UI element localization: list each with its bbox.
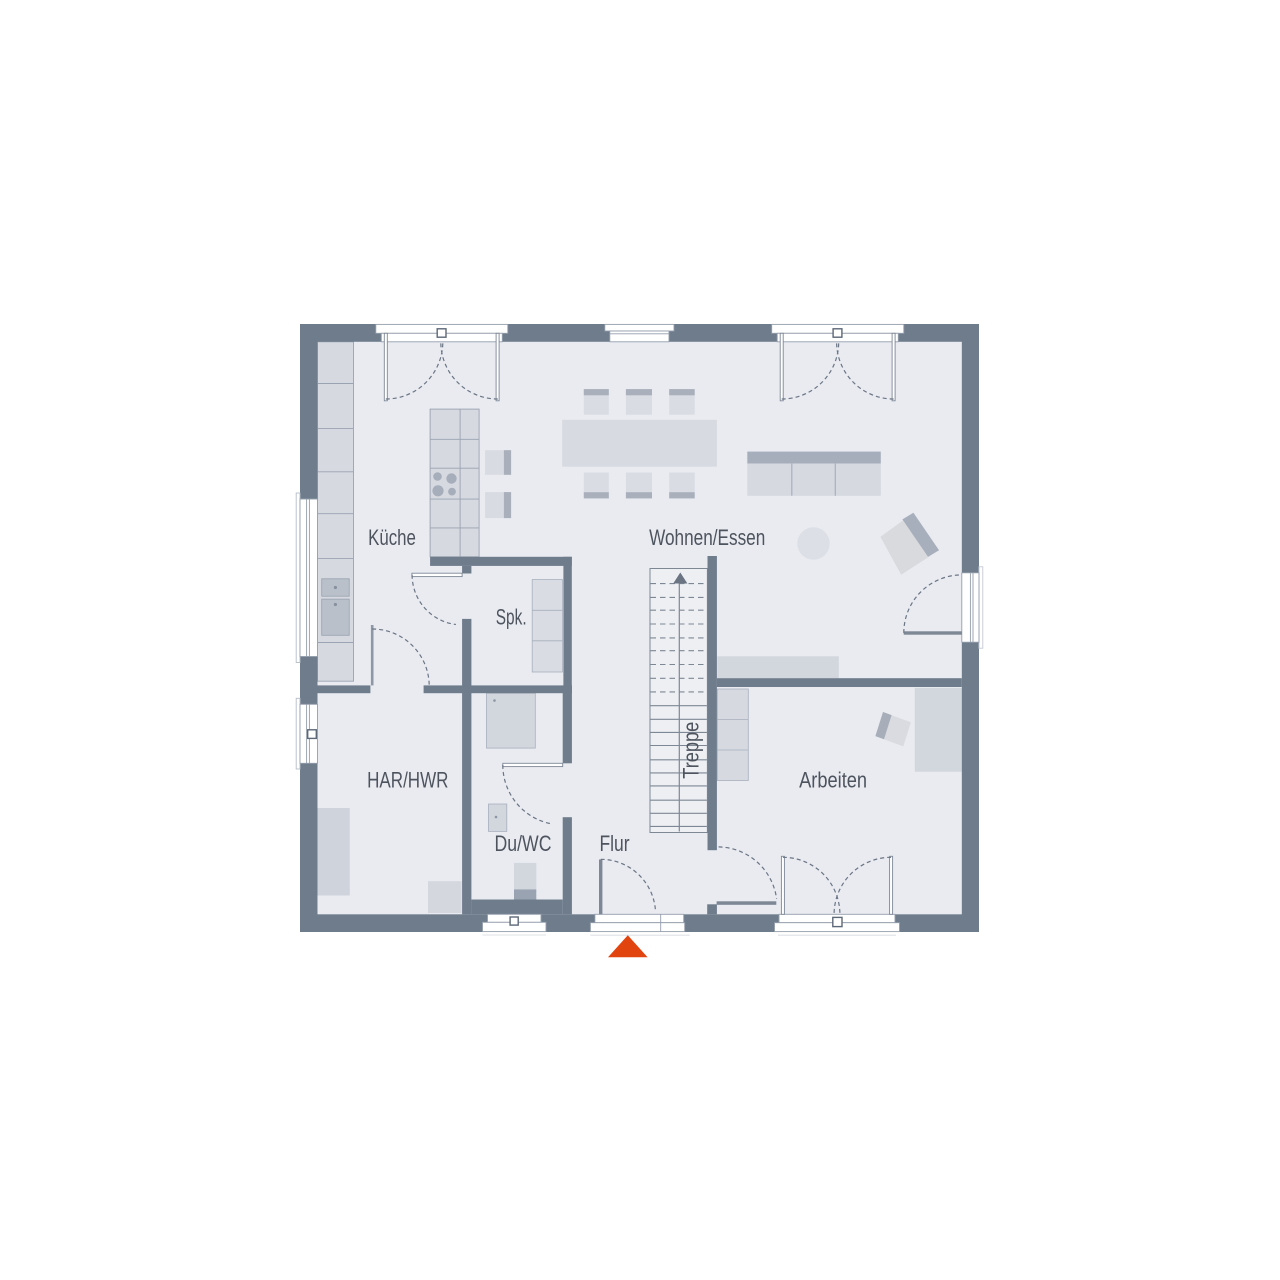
- svg-text:Arbeiten: Arbeiten: [799, 768, 867, 793]
- svg-text:HAR/HWR: HAR/HWR: [367, 768, 448, 793]
- svg-text:Flur: Flur: [599, 831, 629, 856]
- svg-text:Treppe: Treppe: [679, 722, 704, 779]
- svg-text:Küche: Küche: [368, 525, 416, 550]
- svg-text:Du/WC: Du/WC: [495, 831, 552, 856]
- svg-text:Wohnen/Essen: Wohnen/Essen: [649, 525, 765, 550]
- svg-text:Spk.: Spk.: [496, 604, 527, 629]
